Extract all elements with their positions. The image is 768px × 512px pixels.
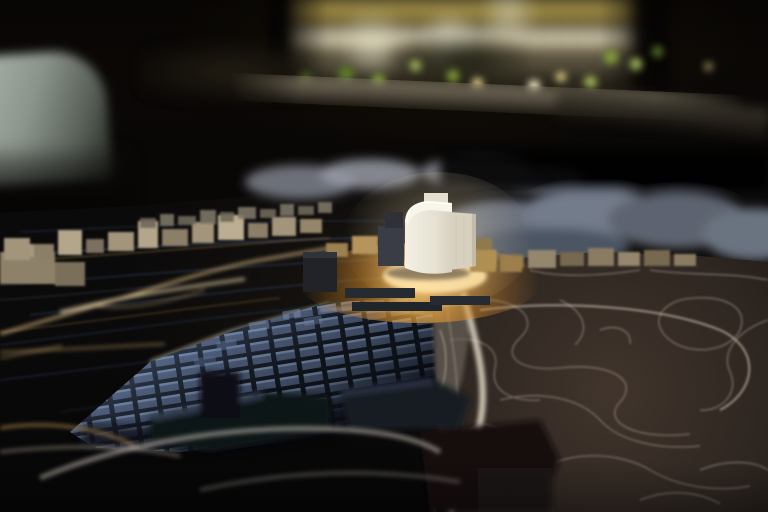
architectural-model-photo: [0, 0, 768, 512]
shoreline-buildings: [0, 202, 332, 286]
city-model-graphics: [0, 0, 768, 512]
